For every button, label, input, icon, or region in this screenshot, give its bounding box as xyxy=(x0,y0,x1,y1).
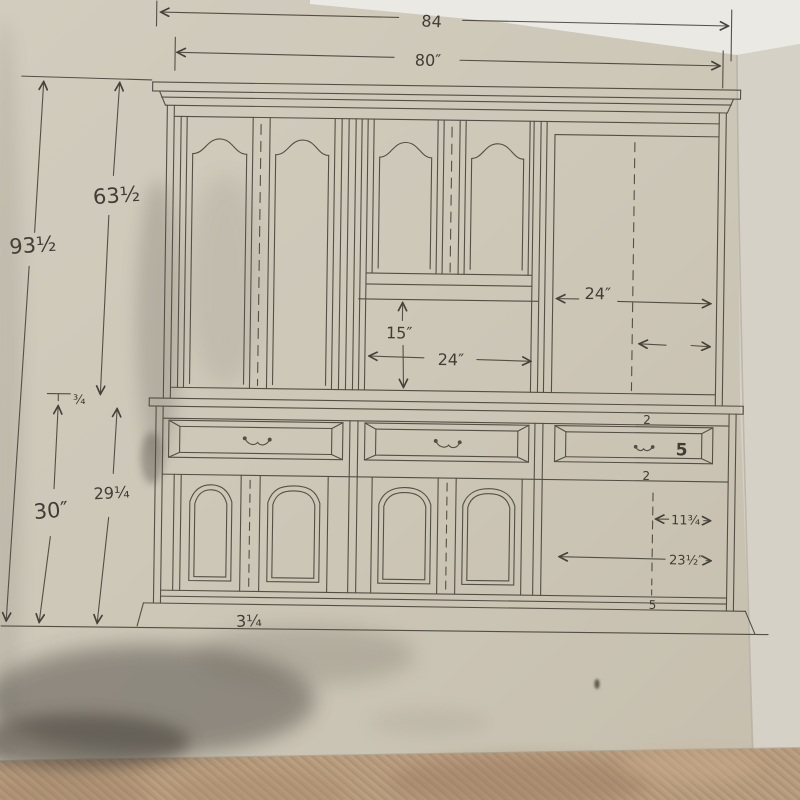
note-rail-bottom: 2 xyxy=(642,469,650,483)
dim-label-29: 29¼ xyxy=(93,482,130,503)
dim-label-80: 80″ xyxy=(415,51,442,70)
dim-label-24-center: 24″ xyxy=(438,350,465,369)
note-rail-top: 2 xyxy=(643,413,651,427)
dim-label-84: 84 xyxy=(421,11,442,31)
dim-label-11: 11¾ xyxy=(671,513,701,528)
blueprint-svg: 84 80″ 93½ 63½ ¾ xyxy=(0,0,800,800)
dim-label-24-right: 24″ xyxy=(584,284,611,303)
note-drawer-depth: 5 xyxy=(676,440,688,460)
photo-of-blueprint: 84 80″ 93½ 63½ ¾ xyxy=(0,0,800,800)
dim-label-15: 15″ xyxy=(386,323,413,342)
dim-label-base-height: 3¼ xyxy=(236,611,262,631)
dim-label-30: 30″ xyxy=(33,497,70,524)
dim-label-waist: ¾ xyxy=(73,393,86,408)
dim-label-63: 63½ xyxy=(92,182,141,209)
dim-label-23: 23½″ xyxy=(669,553,703,568)
note-bottom-rail: 5 xyxy=(649,598,657,612)
